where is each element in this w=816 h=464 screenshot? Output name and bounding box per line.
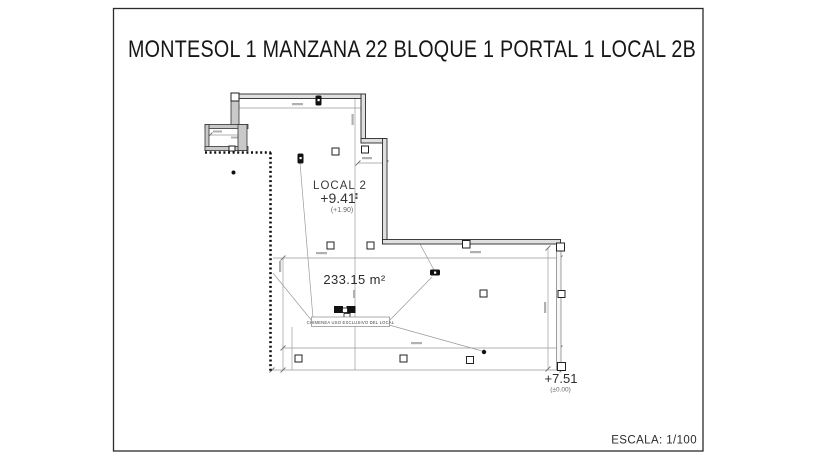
walls	[236, 94, 561, 244]
hatched-walls	[205, 94, 248, 151]
plan-drawing: MONTESOL 1 MANZANA 22 BLOQUE 1 PORTAL 1 …	[0, 0, 816, 459]
scale-label: ESCALA: 1/100	[611, 435, 697, 447]
right-boundary-wall	[557, 244, 562, 370]
chimney-note: CHIMENEA USO EXCLUSIVO DEL LOCAL	[307, 320, 395, 325]
survey-dot	[232, 171, 236, 175]
area-label: 233.15 m²	[323, 272, 385, 287]
access-elevation-note: (±0.00)	[550, 387, 571, 394]
access-elevation: +7.51	[545, 371, 578, 386]
dotted-boundary	[205, 153, 271, 373]
columns	[229, 93, 566, 371]
chimney-symbol	[334, 306, 356, 318]
survey-dot	[482, 350, 486, 354]
sheet-border	[114, 9, 704, 452]
elevation-suffix-mark	[356, 193, 358, 199]
room-elevation: +9.41	[320, 190, 356, 206]
page-title: MONTESOL 1 MANZANA 22 BLOQUE 1 PORTAL 1 …	[128, 36, 696, 63]
room-elevation-note: (+1.90)	[331, 207, 353, 214]
drawing-sheet: MONTESOL 1 MANZANA 22 BLOQUE 1 PORTAL 1 …	[0, 0, 816, 459]
